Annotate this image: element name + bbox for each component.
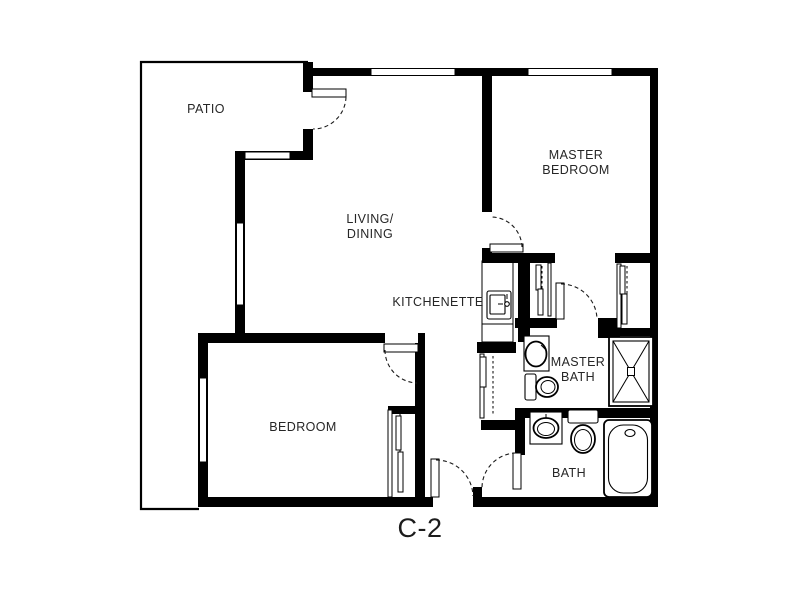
bath-sink-icon (530, 412, 562, 444)
entry-door (431, 459, 473, 497)
unit-label: C-2 (397, 513, 442, 543)
master-bedroom-door (490, 217, 523, 252)
bath-toilet-icon (568, 410, 598, 453)
patio-label: PATIO (187, 102, 225, 116)
bathtub-icon (604, 420, 652, 497)
pantry-closet (480, 354, 493, 418)
bedroom-closet (388, 410, 403, 497)
window-bedroom (200, 378, 207, 462)
window-living-west (237, 223, 244, 305)
patio-door (312, 89, 346, 129)
master-bath-toilet-icon (525, 374, 558, 400)
bath-label: BATH (552, 466, 586, 480)
master-bath-sink-icon (524, 336, 549, 371)
master-bath-label-line1: MASTER (551, 355, 606, 369)
kitchen-counter (482, 261, 513, 342)
floor-plan: PATIO LIVING/ DINING MASTER BEDROOM KITC… (0, 0, 800, 600)
bedroom-door (384, 344, 418, 383)
patio-outline (141, 62, 308, 509)
window-master-bedroom (528, 69, 612, 76)
master-bedroom-label-line1: MASTER (549, 148, 604, 162)
bath-door (482, 453, 521, 489)
living-dining-label-line1: LIVING/ (346, 212, 393, 226)
bedroom-label: BEDROOM (269, 420, 336, 434)
master-bedroom-closet (617, 264, 627, 328)
master-bath-label-line2: BATH (561, 370, 595, 384)
living-dining-label-line2: DINING (347, 227, 393, 241)
kitchen-sink-icon (487, 291, 511, 319)
window-step-wall (245, 152, 290, 159)
master-bedroom-label-line2: BEDROOM (542, 163, 609, 177)
hall-closet (536, 263, 551, 316)
window-living (371, 69, 455, 76)
shower-icon (609, 337, 653, 406)
floor-plan-svg: PATIO LIVING/ DINING MASTER BEDROOM KITC… (0, 0, 800, 600)
kitchenette-label: KITCHENETTE (392, 295, 483, 309)
master-bath-door (556, 283, 597, 319)
